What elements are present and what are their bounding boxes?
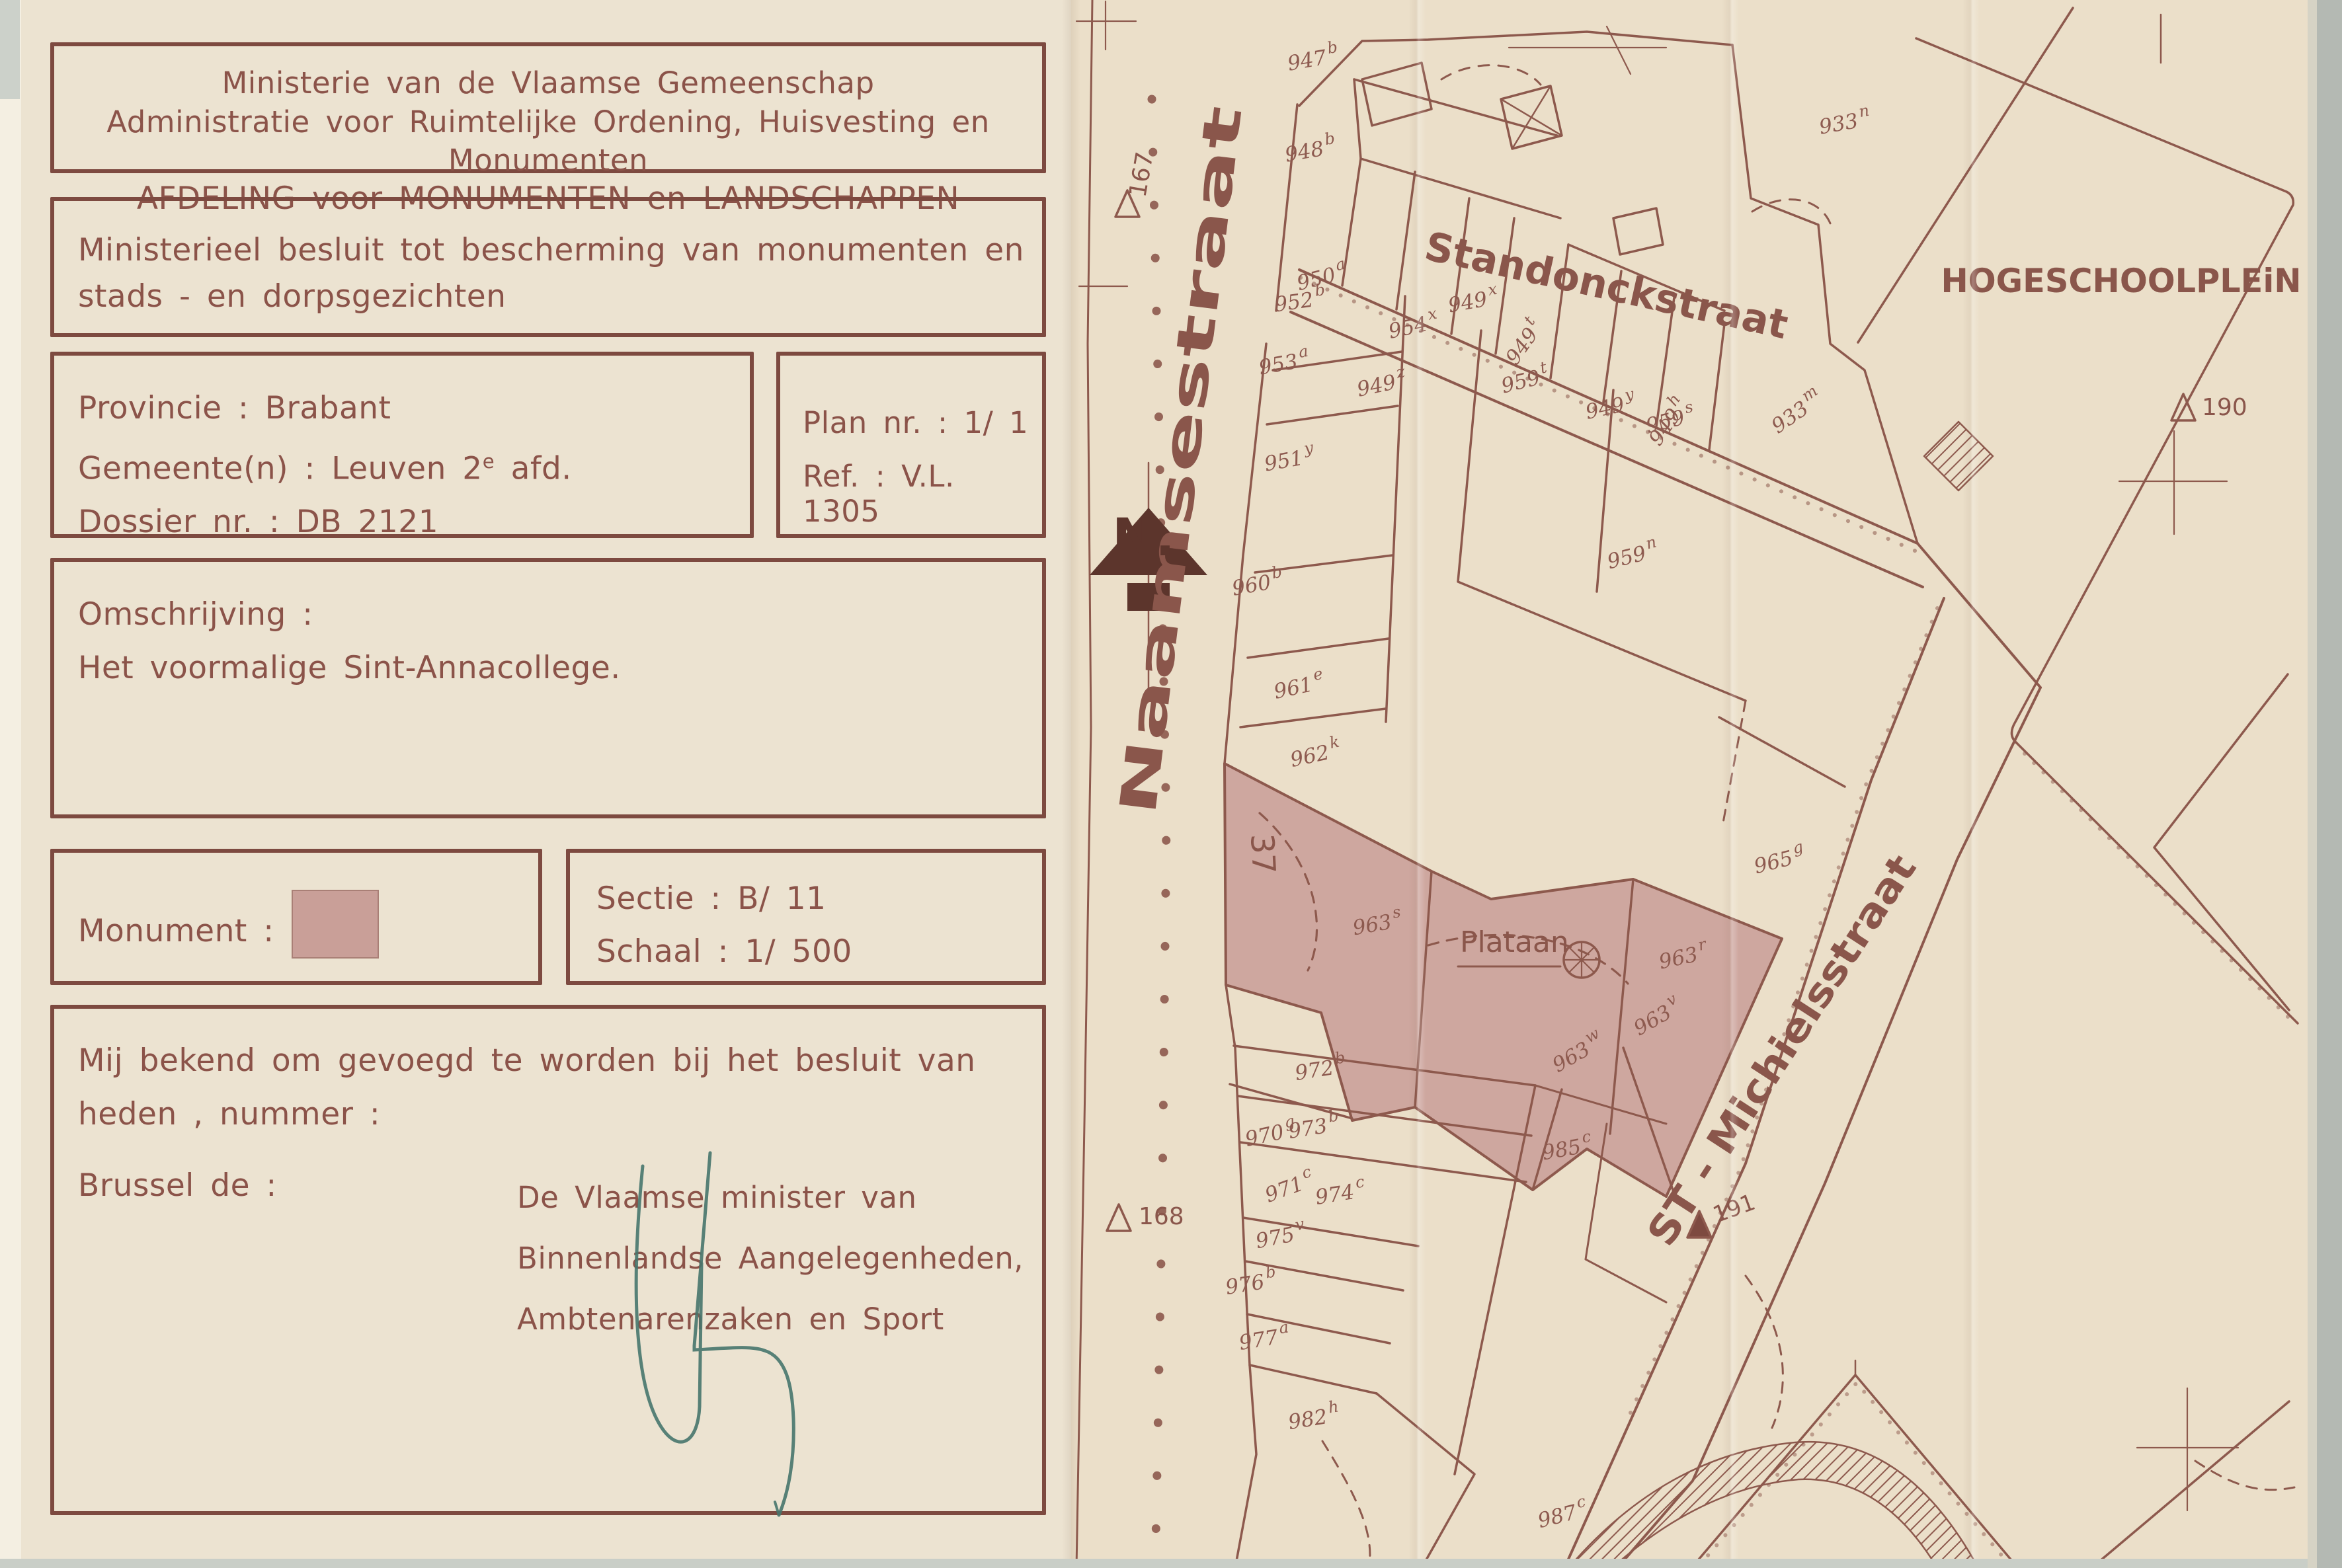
scan-edge-bottom bbox=[0, 1559, 2342, 1568]
hatched-road-edge bbox=[1568, 1442, 1978, 1568]
marker-label-167: 167 bbox=[1124, 150, 1158, 200]
parcel-label: 962k bbox=[1287, 732, 1343, 772]
hatched-diamond-symbol bbox=[1924, 422, 1993, 490]
marker-label-191: 191 bbox=[1709, 1189, 1759, 1229]
scanned-decree-sheet: Ministerie van de Vlaamse Gemeenschap Ad… bbox=[0, 0, 2342, 1568]
parcel-label: 933m bbox=[1764, 381, 1828, 438]
parcel-label: 974c bbox=[1312, 1172, 1367, 1209]
marker-triangle-168 bbox=[1107, 1204, 1131, 1231]
parcel-label: 960b bbox=[1229, 563, 1285, 601]
street-label-naamsestraat: Naamsestraat bbox=[1108, 102, 1254, 818]
parcel-label: 933n bbox=[1816, 101, 1873, 139]
scan-edge-right-soft bbox=[2308, 0, 2317, 1568]
marker-label-168: 168 bbox=[1139, 1203, 1184, 1230]
scan-edge-right bbox=[2317, 0, 2342, 1568]
parcel-label: 971c bbox=[1260, 1162, 1317, 1207]
parcel-label: 953a bbox=[1256, 342, 1311, 380]
parcel-label: 965g bbox=[1750, 838, 1808, 879]
street-label-standonckstraat: Standonckstraat bbox=[1420, 223, 1792, 349]
marker-label-190: 190 bbox=[2202, 394, 2247, 421]
scan-corner-topleft bbox=[0, 0, 20, 99]
parcel-label: 948b bbox=[1282, 129, 1338, 167]
parcel-label: 982h bbox=[1285, 1397, 1342, 1434]
cadastral-map: Naamsestraat Standonckstraat ST - Michie… bbox=[0, 0, 2342, 1568]
house-number-37: 37 bbox=[1243, 833, 1282, 875]
scan-edge-left bbox=[0, 0, 21, 1568]
north-label: N. bbox=[1112, 508, 1175, 568]
parcel-label: 973b bbox=[1285, 1106, 1342, 1144]
street-label-hogeschoolplein: HOGESCHOOLPLEiN bbox=[1941, 262, 2302, 300]
parcel-label: 949x bbox=[1445, 280, 1501, 318]
parcel-label: 951y bbox=[1262, 438, 1317, 477]
parcel-label: 961e bbox=[1270, 664, 1326, 704]
page-fold bbox=[1062, 0, 1080, 1568]
plataan-label: Plataan bbox=[1460, 925, 1569, 959]
crossed-square-symbol bbox=[1501, 86, 1562, 149]
parcel-label: 959n bbox=[1603, 533, 1661, 574]
parcel-label: 976b bbox=[1223, 1262, 1279, 1300]
parcel-label: 949y bbox=[1582, 385, 1638, 424]
parcel-label: 977a bbox=[1236, 1317, 1292, 1355]
